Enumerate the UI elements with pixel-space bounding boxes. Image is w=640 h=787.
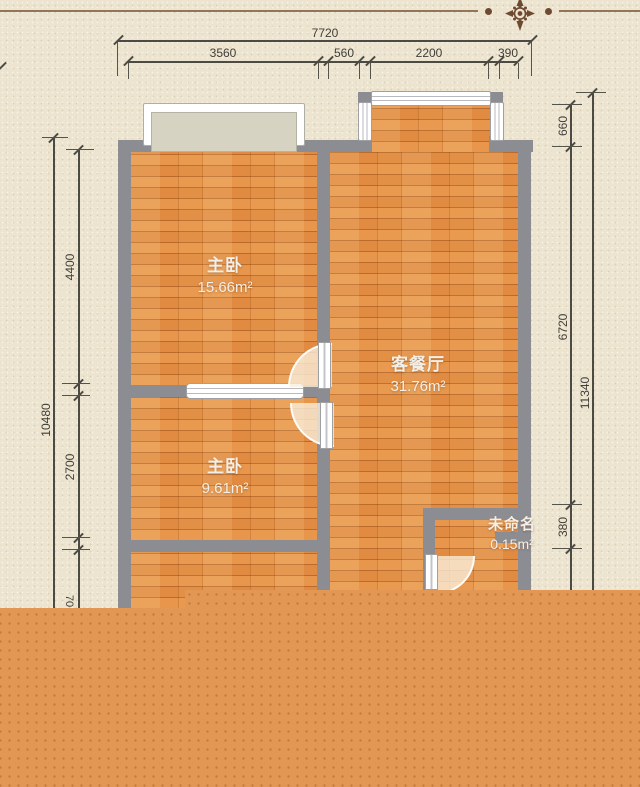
dim-extension [62, 537, 90, 538]
room-area: 31.76m² [338, 378, 498, 395]
dim-label-right-seg2: 6720 [555, 297, 571, 357]
dim-line-top-segments [128, 61, 518, 63]
dim-extension [488, 63, 489, 79]
dim-label-right-seg1: 660 [555, 96, 571, 156]
deco-border-line-right [559, 10, 640, 12]
dim-line-right-total [592, 93, 594, 592]
dim-extension [359, 63, 360, 79]
dim-extension [518, 63, 519, 79]
dim-extension [128, 63, 129, 79]
dim-line-left-total [53, 138, 55, 608]
deco-dot-left [485, 8, 492, 15]
floorplan-canvas: 7720 3560 560 2200 390 10480 4400 2700 6… [0, 0, 640, 787]
dim-extension [62, 395, 90, 396]
dim-label-right-total: 11340 [577, 363, 593, 423]
bay-window-top [371, 91, 491, 106]
dim-extension [62, 383, 90, 384]
dim-label-top-seg4: 390 [478, 46, 538, 60]
room-label-bedroom1: 主卧 15.66m² [145, 251, 305, 296]
dim-extension [499, 63, 500, 79]
dim-label-top-seg1: 3560 [183, 46, 263, 60]
dim-extension [318, 63, 319, 79]
bottom-overlay-step [185, 590, 640, 609]
room-name: 未命名 [452, 513, 572, 534]
room-area: 0.15m² [452, 536, 572, 552]
room-label-bedroom2: 主卧 9.61m² [145, 452, 305, 497]
dim-extension [62, 549, 90, 550]
bay-window-left [358, 102, 372, 141]
dim-label-left-total: 10480 [38, 390, 54, 450]
wall-left-outer [118, 140, 131, 608]
door-leaf-bedroom1 [318, 342, 331, 389]
room-label-living-dining: 客餐厅 31.76m² [338, 350, 498, 395]
dim-label-top-total: 7720 [285, 26, 365, 40]
room-name: 客餐厅 [338, 350, 498, 375]
dim-extension [117, 42, 118, 76]
dim-tick [0, 62, 7, 73]
deco-dot-right [545, 8, 552, 15]
dim-extension [42, 137, 68, 138]
dim-extension [370, 63, 371, 79]
dim-label-left-seg1: 4400 [62, 237, 78, 297]
room-area: 15.66m² [145, 279, 305, 296]
wall-bedroom2-bottom [118, 540, 330, 552]
floral-medallion-icon [497, 0, 543, 31]
dim-line-top-total [118, 40, 532, 42]
dim-extension [328, 63, 329, 79]
interior-window [186, 383, 304, 399]
dim-label-top-seg3: 2200 [389, 46, 469, 60]
dim-label-left-seg2: 2700 [62, 437, 78, 497]
room-label-unnamed: 未命名 0.15m² [452, 513, 572, 552]
bay-protrusion-floor [371, 104, 490, 152]
dim-extension [66, 149, 94, 150]
room-area: 9.61m² [145, 480, 305, 497]
dim-label-top-seg2: 560 [314, 46, 374, 60]
door-leaf-bedroom2 [320, 402, 333, 449]
bedroom1-bay-window-sill [151, 112, 297, 152]
door-leaf-unnamed [425, 554, 438, 590]
room-name: 主卧 [145, 251, 305, 276]
deco-border-line-left [0, 10, 478, 12]
room-name: 主卧 [145, 452, 305, 477]
dim-extension [576, 92, 606, 93]
bay-window-right [490, 102, 504, 141]
bottom-overlay [0, 608, 640, 787]
